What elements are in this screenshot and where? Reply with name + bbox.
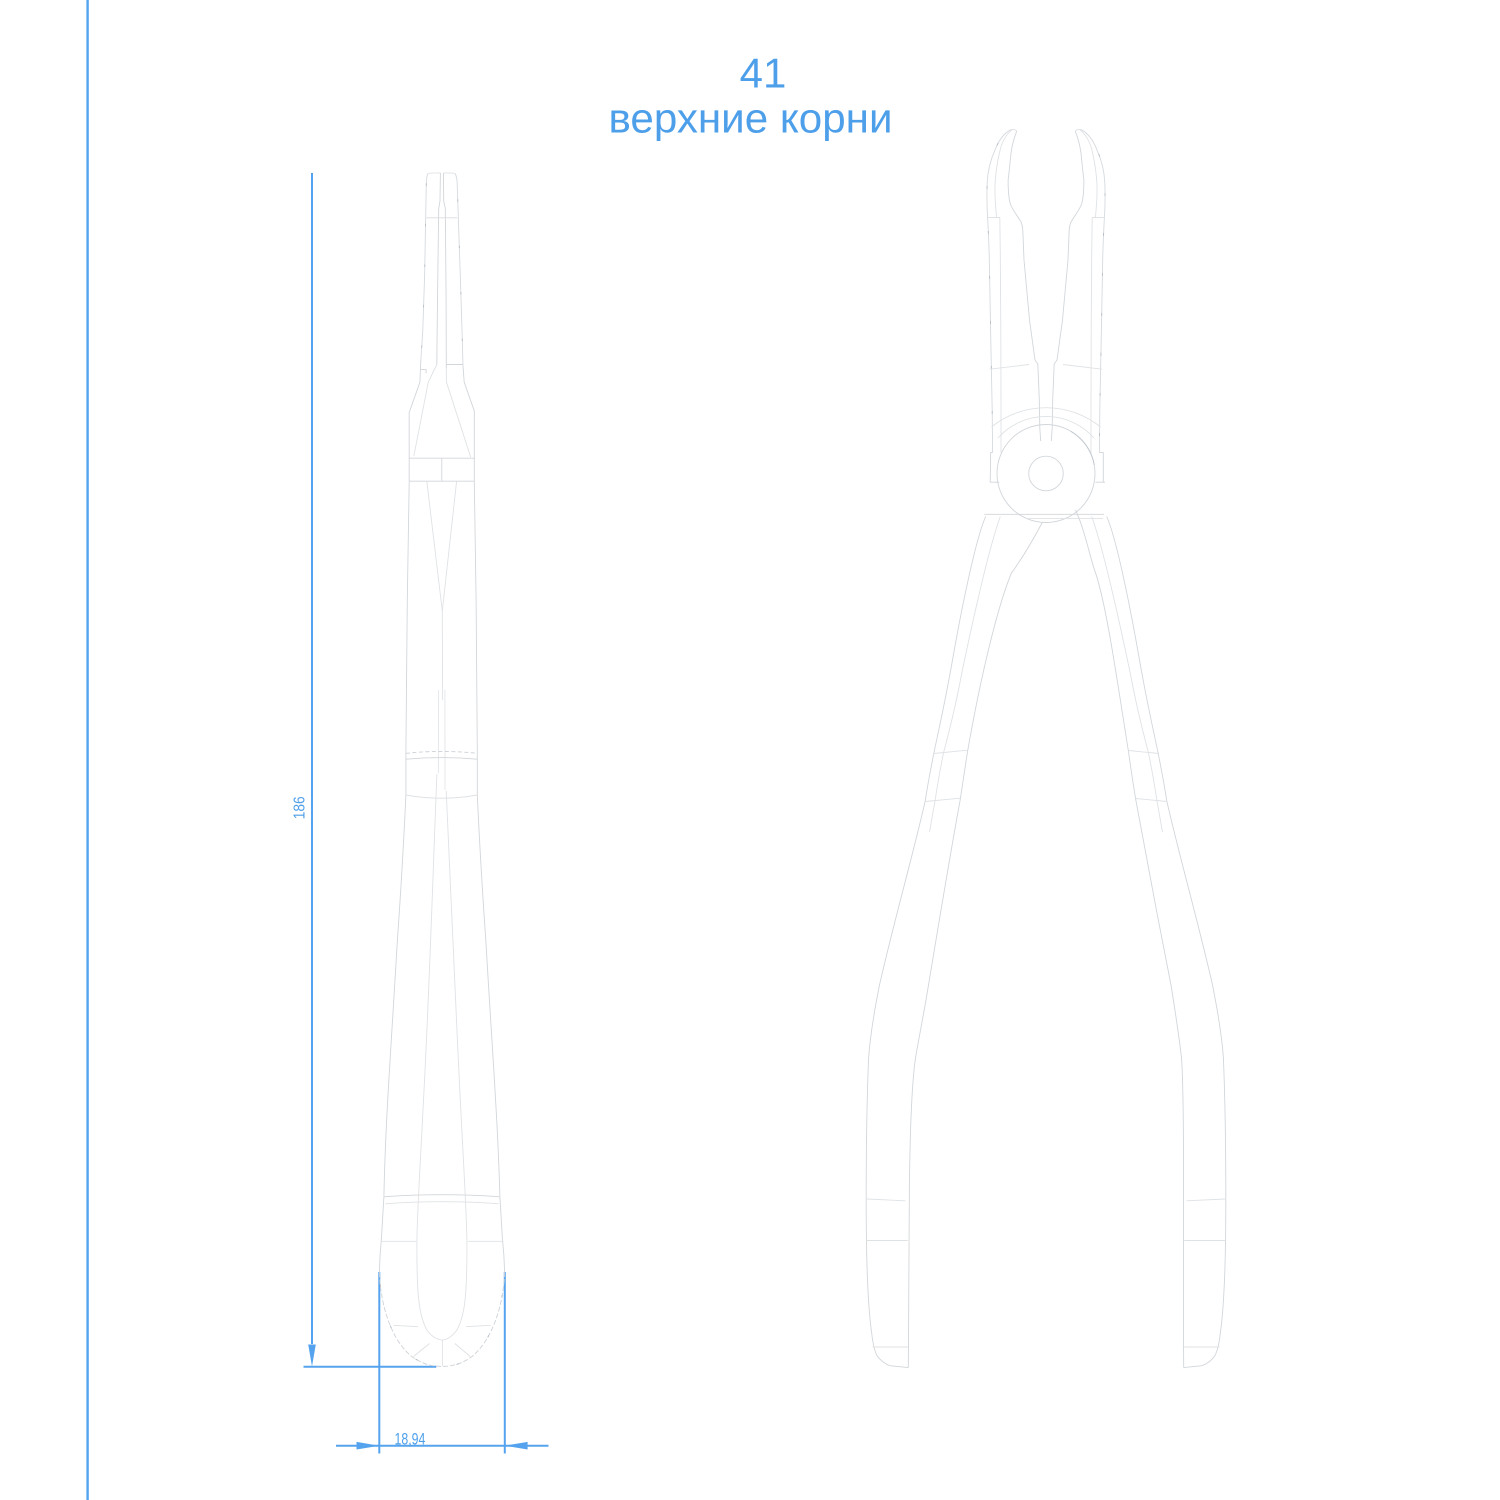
svg-text:186: 186	[292, 796, 309, 819]
svg-text:верхние корни: верхние корни	[609, 94, 893, 141]
svg-text:41: 41	[740, 50, 787, 97]
svg-text:18,94: 18,94	[395, 1429, 426, 1448]
